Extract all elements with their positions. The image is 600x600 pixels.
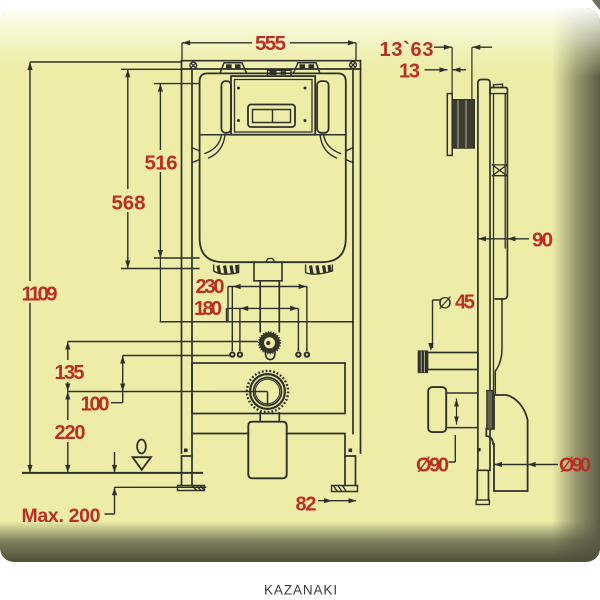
svg-text:45: 45 [455,292,475,314]
svg-text:82: 82 [296,494,317,516]
svg-text:230: 230 [196,276,225,298]
svg-text:568: 568 [112,192,146,215]
svg-text:180: 180 [194,298,222,320]
svg-text:Ø: Ø [438,294,451,313]
svg-text:Ø90: Ø90 [559,455,591,477]
svg-text:100: 100 [81,394,110,416]
svg-text:Max. 200: Max. 200 [22,505,101,527]
svg-text:220: 220 [55,422,86,444]
svg-text:516: 516 [145,152,178,175]
svg-text:135: 135 [55,362,85,384]
svg-text:1109: 1109 [22,283,58,306]
svg-text:13: 13 [399,61,420,83]
svg-text:13`63: 13`63 [380,39,434,61]
svg-text:Ø90: Ø90 [416,455,449,477]
svg-text:90: 90 [532,229,553,252]
svg-text:KAZANAKI: KAZANAKI [264,583,338,598]
svg-text:555: 555 [255,32,286,55]
